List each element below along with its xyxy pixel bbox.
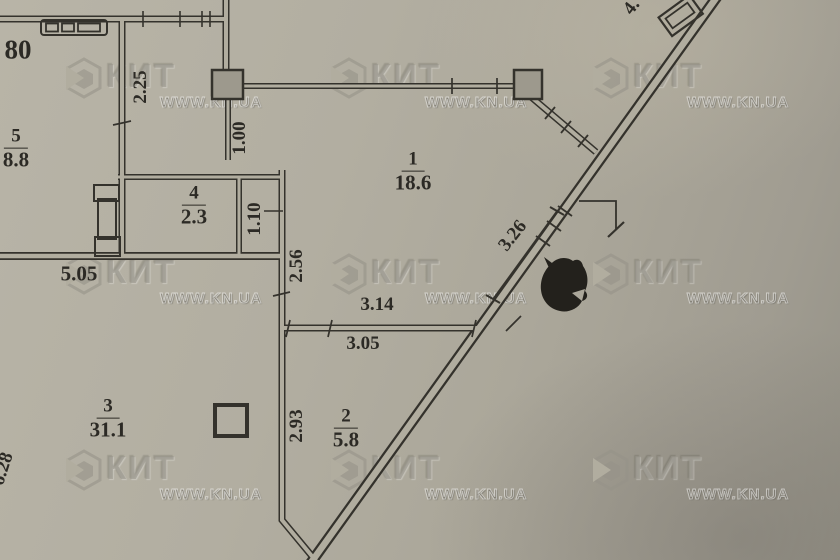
door-block: [98, 199, 116, 239]
dimension-2-56: 2.56: [286, 249, 308, 282]
column: [212, 70, 243, 99]
dimension-1-00: 1.00: [229, 121, 251, 154]
extension-line: [579, 201, 624, 237]
ink-blot: [541, 257, 588, 312]
column-square: [215, 405, 247, 436]
room-number: 2: [334, 407, 358, 429]
room-label-3: 3 31.1: [90, 397, 127, 442]
scanned-floor-plan: КИТ WWW.KN.UA КИТ WWW.KN.UA КИТ WWW.KN.U…: [0, 0, 840, 560]
room-area: 2.3: [181, 205, 207, 229]
radiator-cell: [78, 24, 100, 32]
room-label-2: 2 5.8: [333, 407, 359, 452]
room-area: 31.1: [90, 418, 127, 442]
room-number: 4: [182, 184, 206, 206]
room-area: 8.8: [3, 148, 29, 172]
radiator-cell: [62, 24, 74, 32]
dimension-5-05: 5.05: [61, 262, 98, 287]
room-number: 5: [4, 127, 28, 149]
room-label-1: 1 18.6: [395, 150, 432, 195]
column: [514, 70, 542, 99]
dimension-2-25: 2.25: [130, 70, 152, 103]
room-area: 18.6: [395, 171, 432, 195]
floor-plan-drawing: [0, 0, 840, 560]
room-number: 3: [96, 397, 120, 419]
dimension-1-10: 1.10: [244, 202, 266, 235]
dimension-3-05: 3.05: [346, 333, 379, 355]
room-label-5: 5 8.8: [3, 127, 29, 172]
room-area: 5.8: [333, 428, 359, 452]
dimension-ticks: [113, 78, 521, 337]
radiator-cell: [46, 24, 58, 32]
dimension-top-left-partial: 80: [5, 35, 32, 66]
dimension-3-14: 3.14: [360, 294, 393, 316]
room-number: 1: [401, 150, 425, 172]
dimension-2-93: 2.93: [286, 409, 308, 442]
room-label-4: 4 2.3: [181, 184, 207, 229]
window-rungs: [536, 206, 572, 246]
